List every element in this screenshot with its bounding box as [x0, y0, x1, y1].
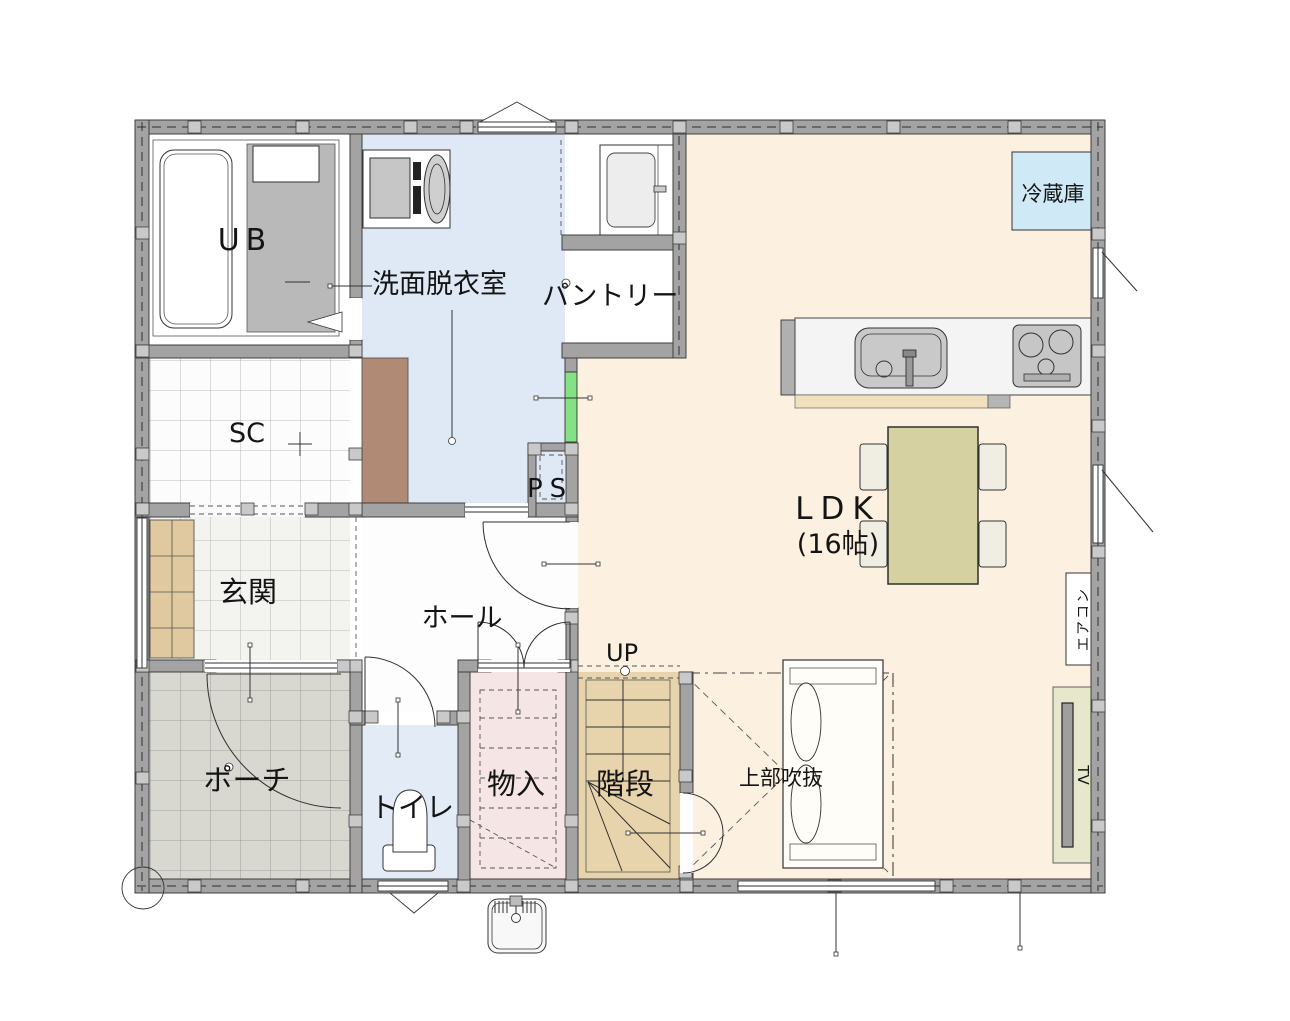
sofa-cushion [791, 683, 821, 761]
pillar [780, 121, 793, 133]
pillar [136, 227, 149, 239]
pillar [404, 121, 417, 133]
pillar [188, 880, 201, 892]
pillar [296, 880, 309, 892]
pillar [241, 503, 254, 515]
washer-control [413, 162, 421, 180]
kitchen-sink [855, 328, 947, 388]
washer-drum [424, 155, 450, 223]
leader-mark [701, 831, 705, 835]
chair [979, 521, 1006, 567]
wall-toilet-storage [458, 660, 470, 893]
pillar [349, 711, 362, 723]
garden-sink-tap-base [510, 896, 522, 906]
pillar [565, 443, 578, 455]
label-aircon: エアコン [1076, 587, 1092, 651]
window-top-awning-icon [480, 102, 553, 122]
washer-control [413, 186, 421, 214]
room-label-stairs: 階段 [596, 767, 654, 801]
room-label-storage: 物入 [487, 767, 545, 801]
garden-sink-outer [488, 899, 546, 953]
vanity-basin [607, 153, 655, 227]
pillar [188, 121, 201, 133]
sofa [783, 660, 883, 868]
pillar [1092, 820, 1105, 832]
ub-counter [253, 146, 319, 182]
washroom-cabinet [362, 358, 408, 503]
pillar [673, 232, 686, 244]
hall-floor-upper [362, 517, 566, 660]
pillar [565, 880, 578, 892]
pillar [136, 345, 149, 357]
room-label-pantry: パントリー [542, 281, 678, 312]
counter-front-strip [795, 395, 988, 408]
entrance-opening [205, 660, 337, 672]
hall-ldk-door-opening [566, 522, 578, 608]
faucet-head [903, 350, 916, 357]
pillar [679, 770, 692, 782]
label-tv: TV [1074, 764, 1092, 785]
bath-door-opening [350, 298, 362, 340]
washing-machine [363, 150, 450, 228]
leader-mark [248, 698, 252, 702]
wall-ub-right-upper [350, 134, 362, 298]
pillar [136, 448, 149, 460]
pillar [940, 880, 953, 892]
room-label-porch: ポーチ [203, 763, 290, 797]
pillar [1008, 121, 1021, 133]
room-label-washroom: 洗面脱衣室 [372, 269, 507, 300]
chair [860, 444, 887, 490]
garden-sink [488, 896, 546, 953]
pillar [1092, 345, 1105, 357]
leader-mark [516, 643, 520, 647]
pillar [349, 503, 362, 515]
washroom-door-opening [465, 503, 528, 517]
washer-panel [370, 158, 410, 218]
pillar [349, 660, 362, 672]
counter-front-cap [988, 395, 1010, 408]
pillar [1092, 228, 1105, 240]
pillar [349, 448, 362, 460]
room-label-ldk: LDK [795, 491, 880, 527]
room-label-sc: SC [229, 418, 265, 449]
room-label-ps: PS [527, 474, 573, 504]
pillar [136, 772, 149, 784]
leader-mark [449, 438, 456, 445]
pillar [565, 503, 578, 515]
pillar [528, 443, 541, 455]
vanity [600, 145, 682, 237]
label-up: UP [606, 639, 638, 667]
dining-table [888, 427, 978, 584]
leader-mark [1018, 946, 1022, 950]
pillar [349, 815, 362, 827]
shoe-cabinet [150, 520, 194, 658]
wall-ps-duct-stub [565, 358, 577, 372]
room-label-ub: UB [218, 223, 273, 258]
wall-storage-stairs [566, 660, 578, 893]
pillar [565, 815, 578, 827]
room-label-hall: ホール [422, 603, 503, 634]
leader-mark [626, 831, 630, 835]
wall-washroom-bottom-left [362, 503, 465, 517]
hall-floor-lower [362, 660, 458, 711]
pillar [437, 711, 450, 723]
pillar [1092, 700, 1105, 712]
pillar [296, 121, 309, 133]
pillar [887, 121, 900, 133]
leader-mark [834, 952, 838, 956]
pillar [365, 711, 378, 723]
pillar [457, 815, 470, 827]
pillar [457, 880, 470, 892]
kitchen-counter [781, 318, 1091, 408]
pillar [349, 345, 362, 357]
window-right-upper-swing [1102, 252, 1137, 291]
leader-mark [396, 698, 400, 702]
vanity-handle [654, 186, 666, 192]
wall-pantry-bottom [562, 343, 686, 358]
label-refrigerator: 冷蔵庫 [1022, 182, 1085, 206]
stairs-up-start-mark [621, 667, 630, 676]
room-label-toilet: トイレ [370, 791, 454, 824]
leader-mark [248, 643, 252, 647]
pillar [673, 121, 686, 133]
pillar [136, 503, 149, 515]
pillar [679, 672, 692, 684]
leader-mark [516, 710, 520, 714]
pillar [565, 121, 578, 133]
pillar [1092, 546, 1105, 558]
room-label-ldk-size: (16帖) [797, 529, 879, 560]
pillar [460, 121, 473, 133]
leader-mark [396, 753, 400, 757]
leader-mark [534, 396, 538, 400]
floorplan: UB 洗面脱衣室 パントリー SC PS 玄関 ホール ポーチ トイレ 物入 階… [0, 0, 1290, 1021]
grill [1024, 374, 1070, 381]
window-right-lower-swing [1102, 470, 1153, 532]
ps-duct [565, 372, 577, 442]
leader-mark [596, 562, 600, 566]
leader-mark [542, 562, 546, 566]
label-void: 上部吹抜 [739, 766, 823, 790]
pillar [305, 503, 318, 515]
wall-porch-right [350, 660, 362, 893]
pillar [337, 660, 350, 672]
wall-ub-sc [135, 345, 362, 358]
leader-mark [588, 396, 592, 400]
wall-pantry-mid [562, 235, 686, 250]
pillar [457, 711, 470, 723]
room-label-genkan: 玄関 [219, 575, 277, 609]
pillar [1008, 880, 1021, 892]
counter-end-cap [781, 320, 795, 395]
wall-storage-top-left [458, 660, 478, 672]
window-toilet-awning-icon [390, 893, 438, 913]
floorplan-svg: UB 洗面脱衣室 パントリー SC PS 玄関 ホール ポーチ トイレ 物入 階… [0, 0, 1290, 1021]
tv-screen [1062, 703, 1073, 847]
pillar [680, 880, 693, 892]
leader-mark [328, 284, 332, 288]
pillar [1092, 420, 1105, 432]
chair [979, 444, 1006, 490]
